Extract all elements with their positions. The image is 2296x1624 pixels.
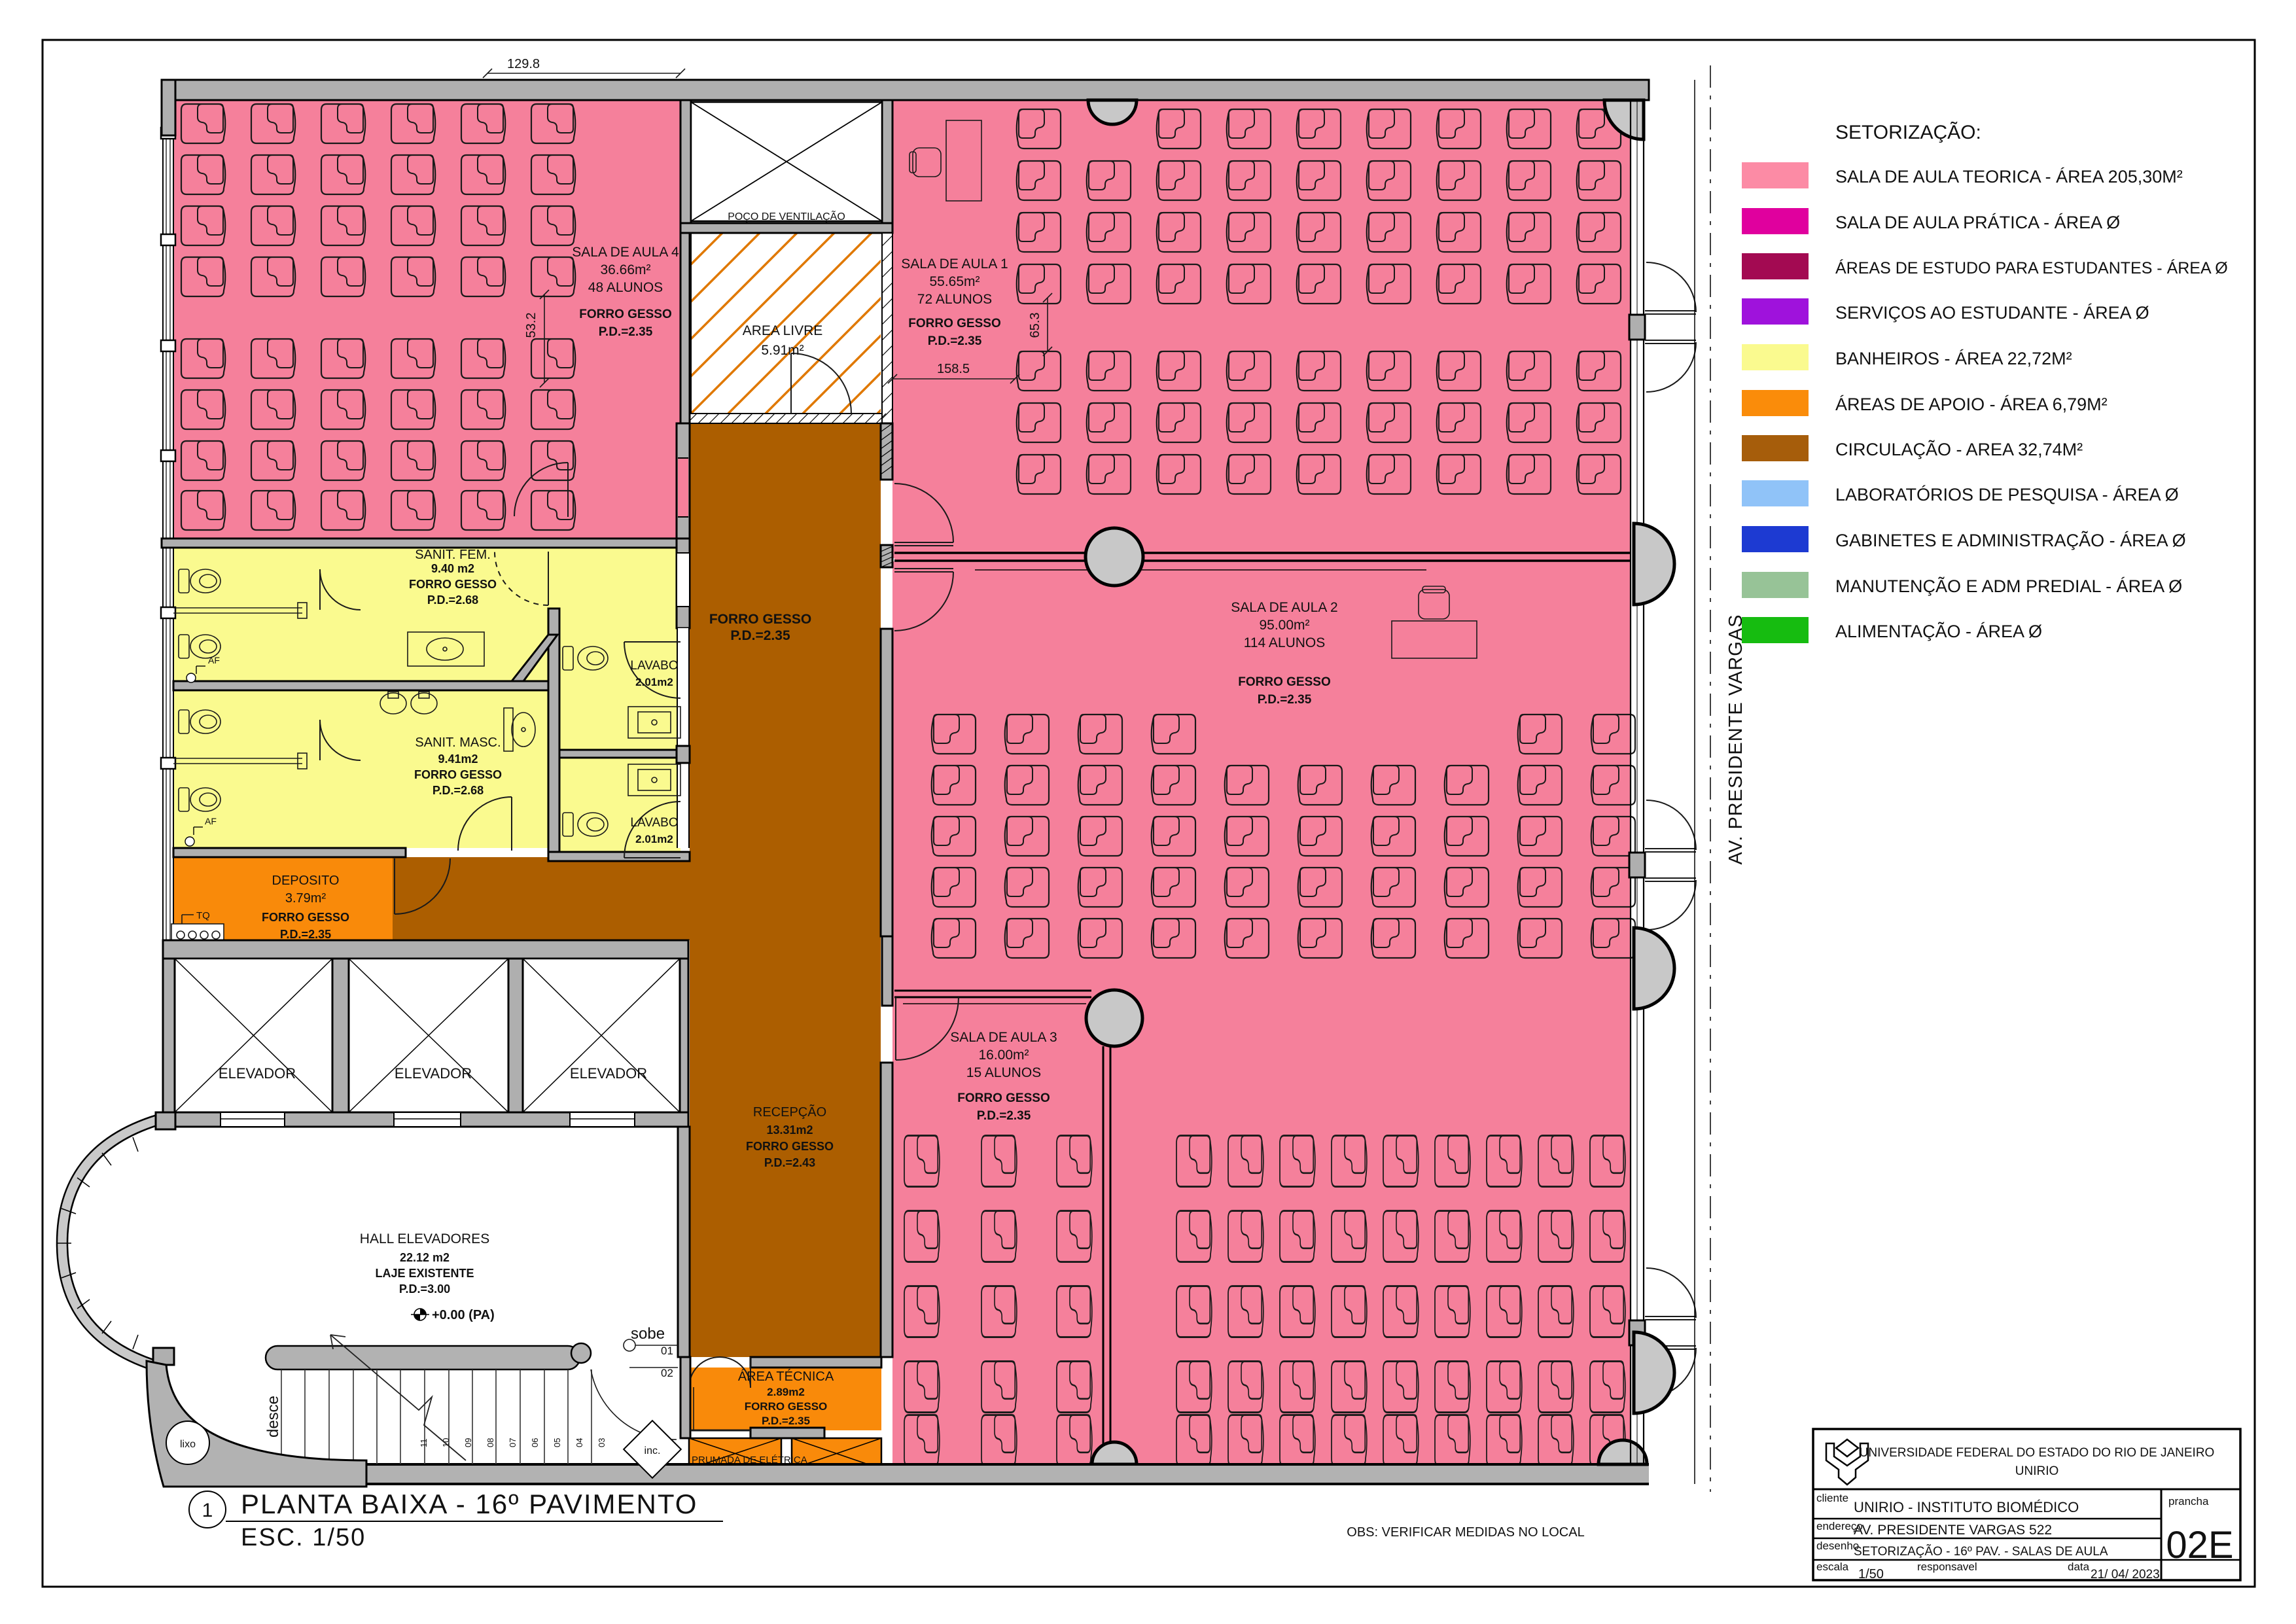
- svg-text:36.66m²: 36.66m²: [600, 262, 650, 277]
- svg-text:P.D.=2.35: P.D.=2.35: [1258, 693, 1312, 707]
- svg-text:FORRO GESSO: FORRO GESSO: [409, 578, 497, 591]
- svg-text:95.00m²: 95.00m²: [1259, 618, 1309, 633]
- svg-text:SERVIÇOS AO ESTUDANTE - ÁREA: SERVIÇOS AO ESTUDANTE - ÁREA Ø: [1835, 303, 2149, 323]
- svg-text:TQ: TQ: [196, 910, 210, 921]
- svg-text:P.D.=2.35: P.D.=2.35: [762, 1415, 810, 1427]
- svg-text:responsavel: responsavel: [1917, 1561, 1977, 1573]
- svg-text:114 ALUNOS: 114 ALUNOS: [1244, 635, 1326, 650]
- svg-text:DEPOSITO: DEPOSITO: [272, 874, 340, 888]
- svg-text:02E: 02E: [2166, 1524, 2233, 1566]
- svg-text:HALL ELEVADORES: HALL ELEVADORES: [360, 1231, 489, 1246]
- svg-text:P.D.=3.00: P.D.=3.00: [399, 1282, 450, 1296]
- svg-text:FORRO GESSO: FORRO GESSO: [709, 612, 811, 627]
- svg-text:P.D.=2.68: P.D.=2.68: [433, 784, 484, 797]
- svg-text:11: 11: [419, 1439, 429, 1448]
- svg-text:PRUMADA DE ELÉTRICA: PRUMADA DE ELÉTRICA: [692, 1455, 807, 1466]
- svg-text:AF: AF: [205, 816, 217, 826]
- svg-text:P.D.=2.35: P.D.=2.35: [977, 1109, 1031, 1123]
- svg-text:SETORIZAÇÃO:: SETORIZAÇÃO:: [1835, 121, 1981, 143]
- svg-text:lixo: lixo: [180, 1439, 196, 1450]
- svg-text:P.D.=2.43: P.D.=2.43: [764, 1156, 815, 1169]
- svg-text:CIRCULAÇÃO - AREA 32,74M²: CIRCULAÇÃO - AREA 32,74M²: [1835, 439, 2083, 459]
- svg-text:1/50: 1/50: [1858, 1567, 1884, 1581]
- svg-text:LAVABO: LAVABO: [630, 816, 678, 830]
- svg-text:ÁREAS DE ESTUDO PARA ESTUDANTE: ÁREAS DE ESTUDO PARA ESTUDANTES - ÁREA Ø: [1835, 258, 2228, 277]
- svg-text:2.01m2: 2.01m2: [635, 833, 673, 845]
- svg-text:53.2: 53.2: [524, 313, 539, 338]
- svg-text:72 ALUNOS: 72 ALUNOS: [917, 292, 992, 307]
- svg-text:ALIMENTAÇÃO - ÁREA Ø: ALIMENTAÇÃO - ÁREA Ø: [1835, 621, 2042, 641]
- svg-text:+0.00 (PA): +0.00 (PA): [432, 1308, 495, 1322]
- svg-text:desenho: desenho: [1816, 1540, 1859, 1552]
- svg-text:ELEVADOR: ELEVADOR: [570, 1065, 647, 1082]
- svg-text:129.8: 129.8: [507, 57, 540, 71]
- svg-text:UNIRIO: UNIRIO: [2015, 1464, 2059, 1478]
- svg-text:P.D.=2.35: P.D.=2.35: [599, 325, 653, 339]
- svg-text:FORRO GESSO: FORRO GESSO: [579, 308, 671, 321]
- svg-text:2.01m2: 2.01m2: [635, 676, 673, 688]
- svg-text:FORRO GESSO: FORRO GESSO: [414, 768, 502, 781]
- svg-text:01: 01: [661, 1345, 673, 1357]
- svg-text:FORRO GESSO: FORRO GESSO: [1238, 675, 1330, 689]
- svg-text:FORRO GESSO: FORRO GESSO: [745, 1400, 828, 1413]
- svg-text:05: 05: [552, 1438, 562, 1447]
- svg-text:08: 08: [486, 1438, 495, 1447]
- svg-text:FORRO GESSO: FORRO GESSO: [262, 911, 349, 924]
- svg-text:48 ALUNOS: 48 ALUNOS: [588, 280, 663, 295]
- svg-text:SALA DE AULA 3: SALA DE AULA 3: [950, 1030, 1057, 1045]
- svg-text:data: data: [2068, 1561, 2090, 1573]
- svg-text:FORRO GESSO: FORRO GESSO: [908, 317, 1000, 330]
- svg-text:ELEVADOR: ELEVADOR: [395, 1065, 472, 1082]
- svg-text:SETORIZAÇÃO - 16º PAV. - SALAS: SETORIZAÇÃO - 16º PAV. - SALAS DE AULA: [1854, 1544, 2108, 1559]
- svg-text:P.D.=2.68: P.D.=2.68: [427, 593, 478, 607]
- svg-text:AV. PRESIDENTE VARGAS: AV. PRESIDENTE VARGAS: [1725, 614, 1746, 864]
- svg-text:sobe: sobe: [631, 1325, 665, 1343]
- svg-text:inc.: inc.: [645, 1445, 661, 1456]
- svg-text:SALA DE AULA PRÁTICA - ÁREA Ø: SALA DE AULA PRÁTICA - ÁREA Ø: [1835, 213, 2120, 232]
- svg-text:2.89m2: 2.89m2: [767, 1386, 805, 1398]
- svg-text:22.12 m2: 22.12 m2: [400, 1251, 450, 1264]
- svg-text:04: 04: [574, 1438, 584, 1447]
- svg-text:SALA DE AULA 2: SALA DE AULA 2: [1231, 600, 1337, 615]
- svg-text:LAVABO: LAVABO: [630, 659, 678, 673]
- svg-text:ESC. 1/50: ESC. 1/50: [241, 1524, 366, 1551]
- svg-text:21/ 04/ 2023: 21/ 04/ 2023: [2091, 1568, 2160, 1581]
- svg-text:9.40 m2: 9.40 m2: [431, 562, 474, 575]
- svg-text:SANIT. FEM.: SANIT. FEM.: [415, 548, 491, 562]
- svg-text:65.3: 65.3: [1028, 313, 1042, 338]
- svg-text:LABORATÓRIOS DE PESQUISA - ÁRE: LABORATÓRIOS DE PESQUISA - ÁREA Ø: [1835, 484, 2179, 504]
- svg-text:ÁREAS DE APOIO - ÁREA 6,79M²: ÁREAS DE APOIO - ÁREA 6,79M²: [1835, 395, 2108, 414]
- svg-text:BANHEIROS - ÁREA 22,72M²: BANHEIROS - ÁREA 22,72M²: [1835, 349, 2072, 368]
- svg-text:SALA DE AULA TEORICA - ÁREA 20: SALA DE AULA TEORICA - ÁREA 205,30M²: [1835, 167, 2183, 186]
- svg-text:55.65m²: 55.65m²: [929, 274, 980, 289]
- svg-text:13.31m2: 13.31m2: [766, 1123, 813, 1137]
- svg-text:15 ALUNOS: 15 ALUNOS: [966, 1065, 1041, 1080]
- svg-text:07: 07: [508, 1438, 518, 1447]
- svg-text:158.5: 158.5: [937, 362, 970, 376]
- svg-text:escala: escala: [1816, 1561, 1849, 1573]
- svg-text:P.D.=2.35: P.D.=2.35: [928, 334, 982, 348]
- svg-text:PLANTA BAIXA - 16º PAVIMENTO: PLANTA BAIXA - 16º PAVIMENTO: [241, 1489, 698, 1519]
- svg-text:AREA LIVRE: AREA LIVRE: [743, 323, 823, 338]
- svg-text:P.D.=2.35: P.D.=2.35: [280, 928, 331, 941]
- svg-text:09: 09: [463, 1438, 473, 1447]
- svg-text:UNIVERSIDADE FEDERAL DO ESTADO: UNIVERSIDADE FEDERAL DO ESTADO DO RIO DE…: [1860, 1446, 2215, 1460]
- svg-text:5.91m²: 5.91m²: [761, 343, 804, 358]
- svg-text:OBS: VERIFICAR MEDIDAS NO LOCA: OBS: VERIFICAR MEDIDAS NO LOCAL: [1347, 1525, 1584, 1540]
- svg-text:cliente: cliente: [1816, 1492, 1848, 1504]
- svg-text:MANUTENÇÃO E ADM PREDIAL - ÁRE: MANUTENÇÃO E ADM PREDIAL - ÁREA Ø: [1835, 576, 2182, 596]
- svg-text:ÁREA TÉCNICA: ÁREA TÉCNICA: [738, 1369, 834, 1384]
- svg-text:P.D.=2.35: P.D.=2.35: [730, 628, 790, 643]
- svg-text:RECEPÇÃO: RECEPÇÃO: [753, 1104, 826, 1120]
- svg-text:06: 06: [530, 1438, 540, 1447]
- svg-text:UNIRIO - INSTITUTO BIOMÉDICO: UNIRIO - INSTITUTO BIOMÉDICO: [1854, 1499, 2079, 1515]
- svg-text:02: 02: [661, 1367, 673, 1379]
- svg-text:LAJE EXISTENTE: LAJE EXISTENTE: [375, 1267, 474, 1280]
- svg-text:16.00m²: 16.00m²: [978, 1048, 1029, 1063]
- svg-text:1: 1: [202, 1500, 213, 1521]
- svg-text:GABINETES E ADMINISTRAÇÃO - ÁR: GABINETES E ADMINISTRAÇÃO - ÁREA Ø: [1835, 530, 2186, 550]
- svg-text:desce: desce: [264, 1396, 282, 1438]
- svg-text:AV. PRESIDENTE VARGAS 522: AV. PRESIDENTE VARGAS 522: [1854, 1523, 2052, 1538]
- svg-text:FORRO GESSO: FORRO GESSO: [746, 1140, 834, 1153]
- svg-text:3.79m²: 3.79m²: [285, 891, 327, 906]
- svg-text:AF: AF: [208, 655, 220, 665]
- svg-text:ELEVADOR: ELEVADOR: [219, 1065, 296, 1082]
- svg-text:prancha: prancha: [2168, 1495, 2209, 1508]
- svg-text:9.41m2: 9.41m2: [438, 752, 478, 766]
- svg-text:SANIT. MASC.: SANIT. MASC.: [415, 735, 501, 750]
- svg-text:SALA DE AULA 4: SALA DE AULA 4: [572, 245, 679, 260]
- svg-text:FORRO GESSO: FORRO GESSO: [957, 1091, 1050, 1105]
- svg-text:SALA DE AULA 1: SALA DE AULA 1: [901, 256, 1008, 272]
- svg-text:POÇO DE VENTILAÇÃO: POÇO DE VENTILAÇÃO: [728, 209, 845, 222]
- svg-text:03: 03: [597, 1438, 607, 1447]
